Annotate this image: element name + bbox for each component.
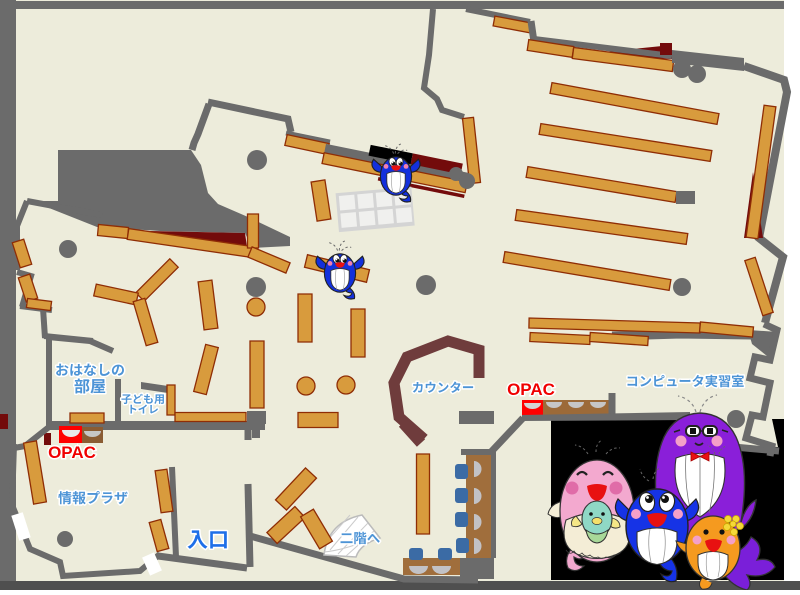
svg-text:OPAC: OPAC (507, 380, 555, 399)
svg-text:OPAC: OPAC (48, 443, 96, 462)
